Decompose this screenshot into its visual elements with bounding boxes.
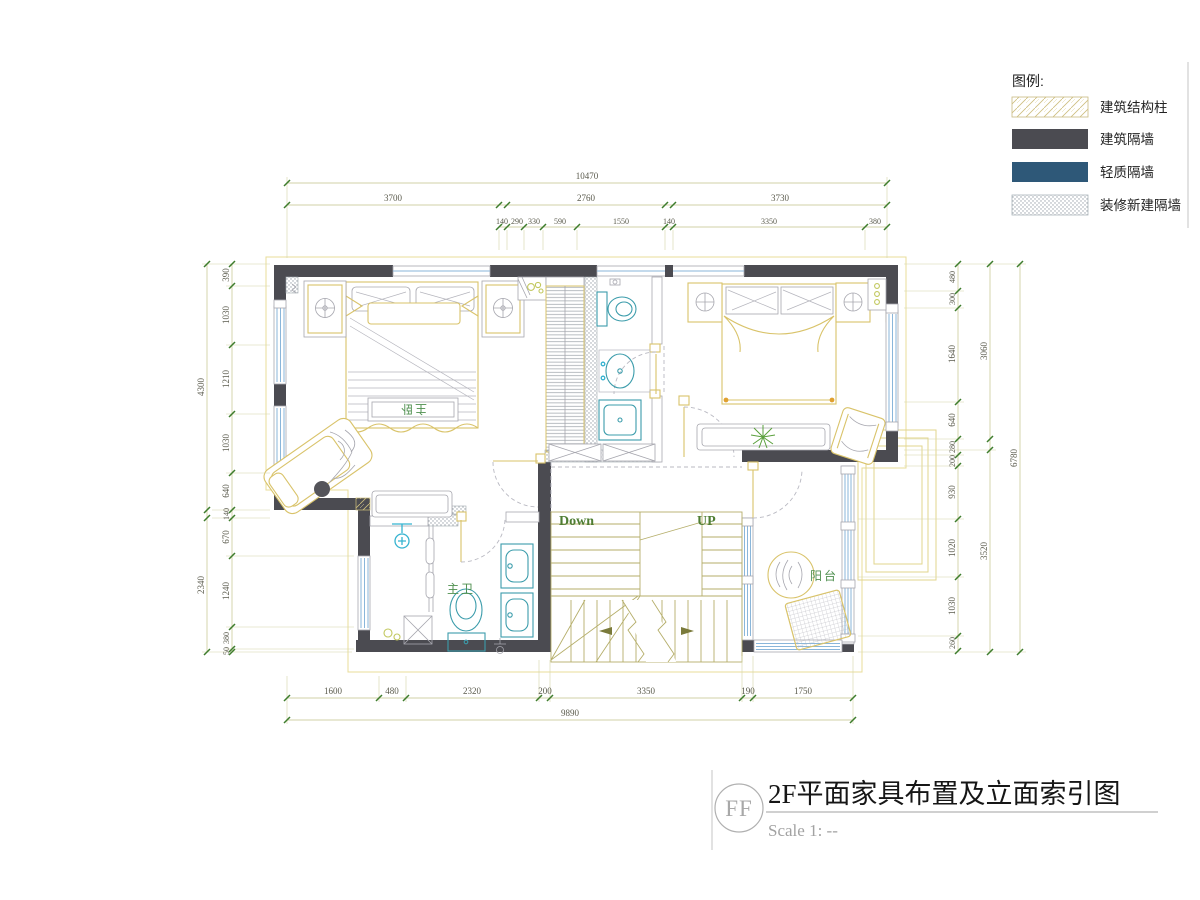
window-left-1 (274, 300, 286, 384)
soap-dish (384, 629, 392, 637)
shower-head (392, 524, 412, 548)
room-label-master-bedroom: 主卧 (399, 402, 427, 416)
dim-label: 3350 (761, 217, 777, 226)
cabinet-x-2 (603, 444, 655, 461)
glass-partition (426, 526, 434, 612)
dim-label: 2340 (196, 576, 206, 595)
dim-label: 1240 (221, 582, 231, 601)
dim-label: 290 (511, 217, 523, 226)
dim-label: 50 (222, 647, 231, 655)
dim-label: 930 (947, 485, 957, 499)
dim-label: 480 (385, 686, 399, 696)
dim-label: 670 (221, 530, 231, 544)
master-bedroom: 主卧 (260, 277, 546, 517)
dimensions-bottom: 1600 480 2320 200 3350 190 1750 9890 (284, 656, 856, 724)
dim-label: 6780 (1009, 449, 1019, 468)
dim-label: 280 (948, 441, 957, 453)
dim-label: 200 (948, 455, 957, 467)
dim-label: 1030 (221, 306, 231, 325)
window-bath-left (358, 556, 370, 630)
bench-long (372, 491, 452, 517)
dim-label: 4300 (196, 378, 206, 397)
dim-label: 3060 (979, 342, 989, 361)
floor-plan-drawing: 主卧 (0, 0, 1200, 900)
dim-label: 1030 (947, 597, 957, 616)
door-middle-bathroom (614, 344, 660, 398)
window-bedroom-right (886, 304, 898, 431)
round-table (768, 552, 814, 598)
drawing-scale: Scale 1: -- (768, 821, 838, 840)
dim-label: 200 (538, 686, 552, 696)
sink-2 (501, 593, 533, 637)
dim-label: 590 (554, 217, 566, 226)
legend-item-label: 建筑结构柱 (1100, 100, 1168, 115)
window-top-2 (597, 265, 744, 277)
legend-item-lightweight-wall: 轻质隔墙 (1012, 162, 1154, 182)
dim-label: 1750 (794, 686, 813, 696)
room-label-master-bathroom: 主卫 (447, 582, 475, 596)
dim-label: 140 (222, 508, 231, 520)
dim-label: 2760 (577, 193, 596, 203)
window-balcony-left (742, 518, 753, 640)
legend-item-label: 建筑隔墙 (1100, 132, 1154, 147)
dim-label: 640 (947, 413, 957, 427)
dim-label: 9890 (561, 708, 580, 718)
dim-label: 3700 (384, 193, 403, 203)
soap-dish (394, 634, 400, 640)
solid-swatch-icon (1012, 162, 1088, 182)
dim-label: 1210 (221, 370, 231, 389)
dim-label: 190 (741, 686, 755, 696)
drawing-index-symbol: FF (725, 796, 753, 821)
dim-label: 3730 (771, 193, 790, 203)
sink-1 (501, 544, 533, 588)
wardrobe (546, 277, 655, 461)
title-block: FF 2F平面家具布置及立面索引图 Scale 1: -- (712, 770, 1158, 850)
shower-tray (599, 400, 641, 440)
nightstand-2-left (688, 283, 722, 322)
floor-drain (404, 616, 432, 644)
legend-item-label: 轻质隔墙 (1100, 165, 1154, 180)
bed-2 (722, 284, 836, 404)
dim-label: 140 (496, 217, 508, 226)
sink-oval (599, 350, 650, 392)
legend-title: 图例: (1012, 73, 1044, 89)
dim-label: 1020 (947, 539, 957, 558)
bedroom-2 (688, 279, 886, 466)
dim-label: 10470 (576, 171, 599, 181)
dim-label: 3520 (979, 542, 989, 561)
dim-label: 480 (948, 271, 957, 283)
new-partition-wall (585, 277, 597, 462)
dim-label: 1600 (324, 686, 343, 696)
stairs: Down UP (551, 512, 742, 662)
solid-swatch-icon (1012, 129, 1088, 149)
dots-swatch-icon (1012, 195, 1088, 215)
wall-break-mark (292, 284, 296, 475)
dim-label: 140 (663, 217, 675, 226)
toilet-1 (597, 292, 636, 326)
middle-bathroom (597, 279, 650, 440)
nightstand-2-right (836, 283, 870, 322)
floor-plan-sheet: 主卧 (0, 0, 1200, 900)
master-bathroom: 主卫 (384, 524, 533, 654)
legend-item-new-partition-wall: 装修新建隔墙 (1012, 195, 1181, 215)
dim-label: 1550 (613, 217, 629, 226)
door-master-bathroom (457, 512, 505, 562)
hatch-swatch-icon (1012, 97, 1088, 117)
dim-label: 1030 (221, 434, 231, 453)
dimensions-top: 10470 3700 2760 3730 140 290 330 590 155… (284, 171, 890, 258)
dim-label: 2320 (463, 686, 482, 696)
legend-item-structural-column: 建筑结构柱 (1012, 97, 1168, 117)
dim-label: 330 (528, 217, 540, 226)
window-top-1 (393, 266, 490, 276)
cabinet-x-1 (549, 444, 601, 461)
dim-label: 260 (948, 637, 957, 649)
stairs-down-label: Down (559, 514, 594, 529)
dim-label: 3350 (637, 686, 656, 696)
room-label-balcony: 阳台 (810, 568, 838, 583)
door-master-bedroom (493, 454, 545, 507)
legend-item-building-wall: 建筑隔墙 (1012, 129, 1154, 149)
dim-label: 380 (222, 632, 231, 644)
paper-holder (610, 279, 620, 285)
dim-label: 1640 (947, 345, 957, 364)
drawing-title: 2F平面家具布置及立面索引图 (768, 779, 1121, 809)
dim-label: 380 (869, 217, 881, 226)
structural-column (356, 498, 370, 510)
vanity-counter (518, 277, 546, 300)
balcony: 阳台 (768, 552, 851, 650)
dim-label: 300 (948, 293, 957, 305)
new-partition-wall (286, 277, 298, 293)
nightstand-left (304, 281, 346, 337)
dim-label: 390 (221, 268, 231, 282)
corner-shelf (868, 279, 886, 310)
stairs-up-label: UP (697, 514, 716, 529)
dim-label: 640 (221, 484, 231, 498)
door-balcony (748, 462, 802, 518)
legend-item-label: 装修新建隔墙 (1100, 198, 1181, 213)
legend: 图例: 建筑结构柱 建筑隔墙 轻质隔墙 装修新建隔墙 (1012, 62, 1188, 228)
